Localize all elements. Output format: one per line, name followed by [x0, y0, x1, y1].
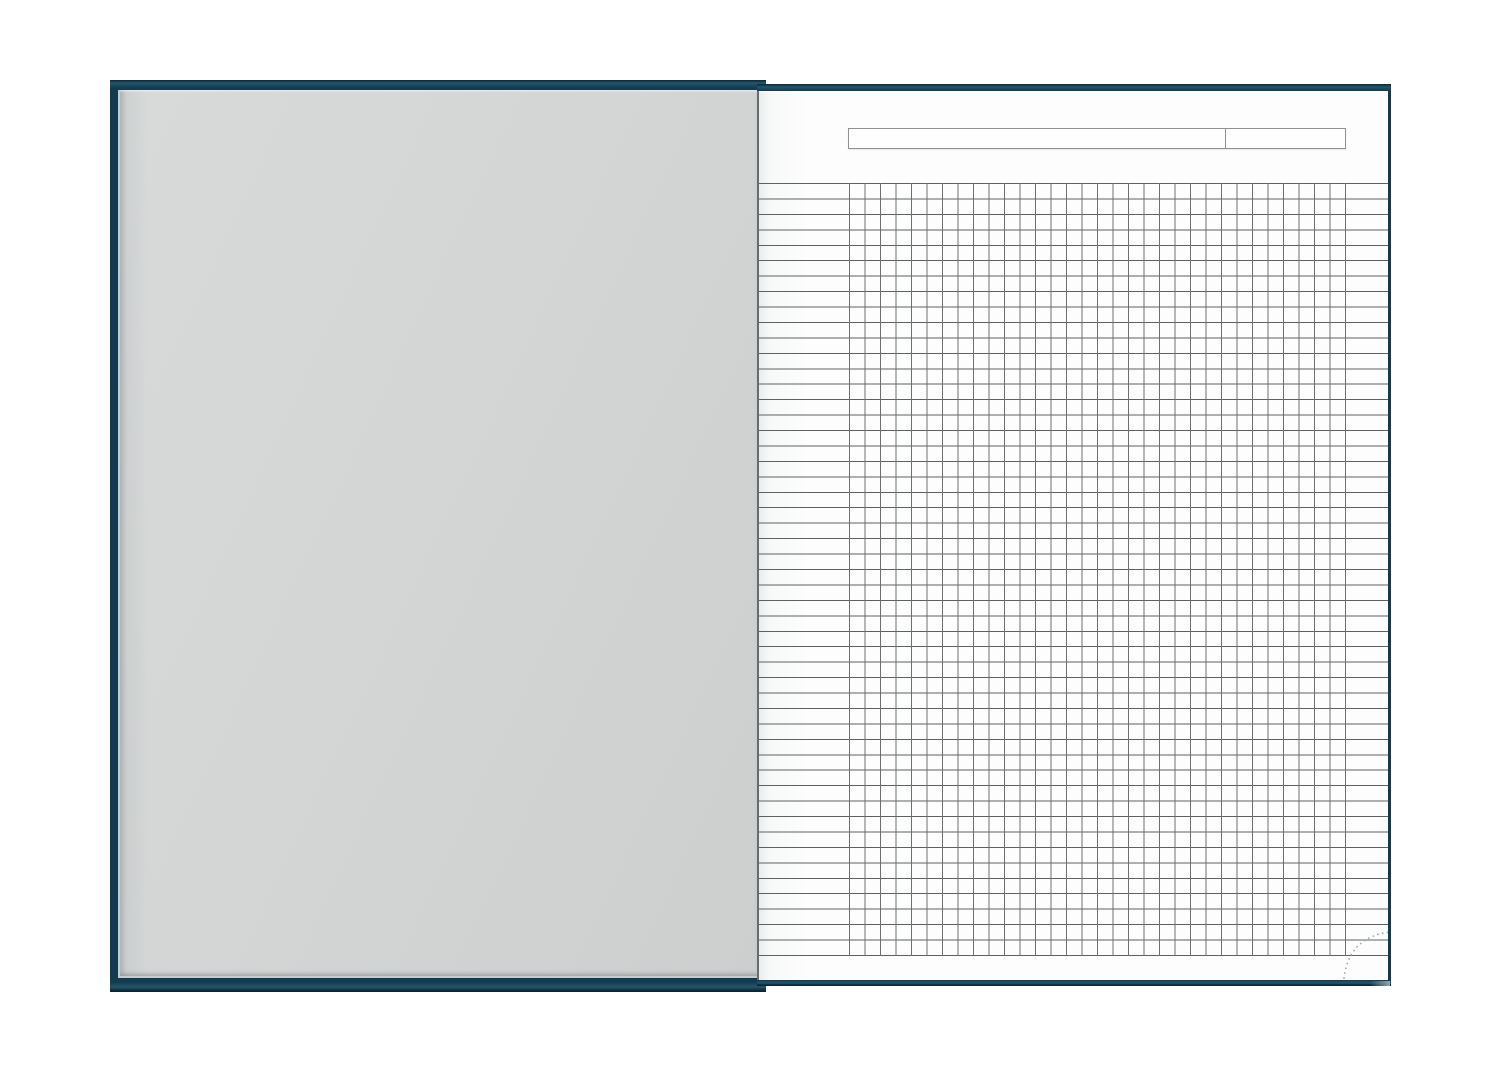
front-cover-edge: [110, 80, 766, 992]
cover-corner-highlight: [1370, 981, 1390, 986]
header-title-field: [849, 129, 1225, 148]
vertical-rules: [849, 183, 1346, 956]
back-cover-edge: [757, 84, 1391, 986]
header-field-group: [848, 128, 1346, 149]
product-photo-canvas: [0, 0, 1500, 1072]
left-blank-page: [118, 90, 757, 978]
header-side-field: [1225, 129, 1345, 148]
right-squared-page: [757, 91, 1388, 980]
